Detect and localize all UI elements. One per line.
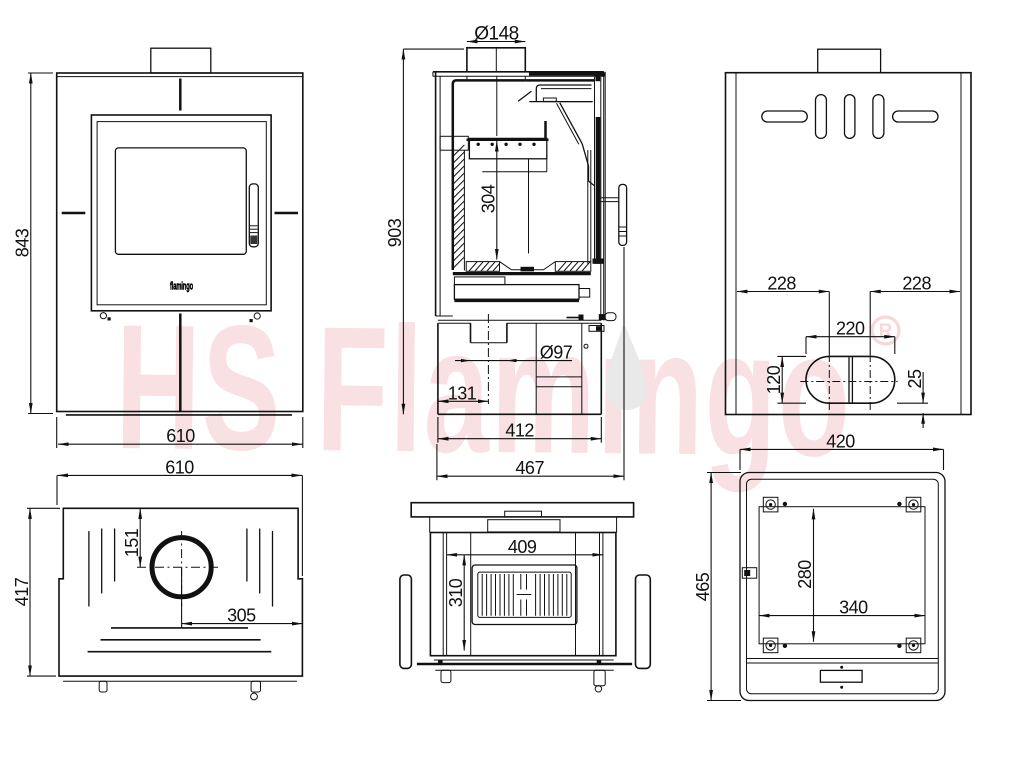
svg-text:304: 304 bbox=[479, 184, 499, 213]
svg-text:465: 465 bbox=[693, 572, 713, 601]
svg-text:R: R bbox=[879, 321, 893, 342]
svg-text:Ø148: Ø148 bbox=[474, 23, 518, 44]
svg-text:131: 131 bbox=[448, 383, 477, 403]
svg-text:340: 340 bbox=[839, 598, 868, 618]
svg-text:280: 280 bbox=[795, 560, 815, 589]
svg-text:610: 610 bbox=[166, 426, 195, 446]
svg-text:Ø97: Ø97 bbox=[540, 343, 573, 363]
svg-text:220: 220 bbox=[836, 319, 865, 339]
svg-text:305: 305 bbox=[227, 606, 256, 626]
svg-text:420: 420 bbox=[826, 431, 855, 451]
svg-text:228: 228 bbox=[767, 274, 796, 294]
svg-text:228: 228 bbox=[902, 274, 931, 294]
svg-text:610: 610 bbox=[165, 457, 194, 477]
svg-text:412: 412 bbox=[505, 421, 534, 441]
svg-text:120: 120 bbox=[764, 365, 784, 394]
svg-text:HS Flamıngo: HS Flamıngo bbox=[115, 286, 853, 493]
svg-text:310: 310 bbox=[446, 578, 466, 607]
svg-text:409: 409 bbox=[508, 537, 537, 557]
svg-text:flamingo: flamingo bbox=[170, 279, 193, 292]
svg-text:903: 903 bbox=[385, 218, 405, 247]
svg-text:417: 417 bbox=[12, 577, 32, 606]
svg-text:151: 151 bbox=[122, 528, 142, 557]
svg-text:843: 843 bbox=[12, 228, 32, 257]
svg-text:25: 25 bbox=[905, 369, 925, 389]
svg-text:467: 467 bbox=[515, 458, 544, 478]
